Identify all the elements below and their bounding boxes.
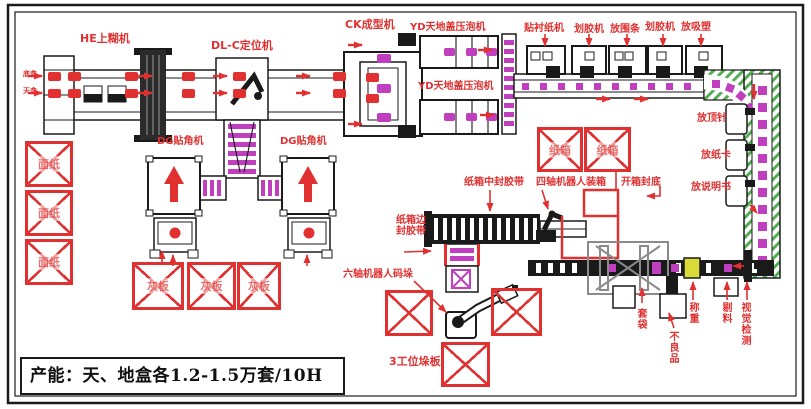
pallet-facepaper-2: 面纸 [25,190,73,236]
pallet-label: 面纸 [37,205,61,221]
dg-corner-machine-left [146,156,202,258]
label-edge-seal-tape: 纸箱边封胶带 [396,215,430,237]
label-six-axis-palletizer: 六轴机器人码垛 [343,269,413,280]
line-art: .s2{stroke:#1a1a1a;stroke-width:2;fill:#… [0,0,811,409]
glue-scoring-machine-2 [648,46,682,78]
label-bagging: 套袋 [635,308,646,330]
label-glue-scoring-1: 划胶机 [574,24,604,35]
pallet-label: 面纸 [37,156,61,172]
pallet-label: 面纸 [37,254,61,270]
pallet-label: 灰板 [200,278,224,294]
label-place-manual: 放说明书 [691,182,731,193]
pallet-station-3 [441,342,490,387]
pallet-label: 灰板 [146,278,170,294]
finishing-conveyor [514,74,704,98]
pallet-greyboard-2: 灰板 [187,262,236,310]
label-ck-forming-machine: CK成型机 [345,19,395,31]
label-weighing: 称重 [687,302,698,324]
label-dlc-positioner: DL-C定位机 [211,40,273,52]
center-vertical-conveyor [200,120,284,200]
ck-forming-machine-drawing [344,33,422,138]
label-top-box-feed: 天盒 [23,88,37,96]
label-yd-press-top: YD天地盖压泡机 [410,22,486,33]
label-he-gluing-machine: HE上糊机 [80,33,130,45]
glue-scoring-machine-1 [572,46,606,78]
pallet-carton-1: 纸箱 [537,127,583,172]
label-four-axis-packing: 四轴机器人装箱 [536,177,606,188]
label-lining-paper-machine: 贴衬纸机 [524,23,564,34]
lining-paper-machine [527,46,565,78]
label-vision-inspection: 视觉检测 [739,302,750,346]
label-reject: 剔料 [720,302,731,324]
capacity-text: 产能：天、地盒各1.2-1.5万套/10H [30,366,323,386]
label-dg-left: DG贴角机 [157,136,204,147]
label-place-pin: 放顶针 [697,113,727,124]
label-pallet-stations: 3工位垛板 [389,356,441,368]
pallet-facepaper-3: 面纸 [25,239,73,285]
dg-corner-machine-right [280,156,336,258]
label-center-seal-tape: 纸箱中封胶带 [464,177,524,188]
inspection-conveyor [528,260,774,276]
rim-strip-station [609,46,646,78]
label-blister-placing: 放吸塑 [681,22,711,33]
pallet-label: 纸箱 [548,142,572,158]
pallet-carton-2: 纸箱 [584,127,631,172]
factory-layout-diagram: .s2{stroke:#1a1a1a;stroke-width:2;fill:#… [0,0,811,409]
pallet-greyboard-1: 灰板 [132,262,184,310]
label-rim-strip: 放围条 [610,24,640,35]
label-bottom-box-feed: 底盒 [23,71,37,79]
pallet-station-2 [491,288,542,336]
pallet-greyboard-3: 灰板 [237,262,281,310]
pallet-label: 纸箱 [596,142,620,158]
bagging-station [613,286,635,308]
label-yd-press-bottom: YD天地盖压泡机 [418,81,494,92]
pallet-station-1 [385,290,433,336]
yd-press-machine-bottom [420,100,498,134]
weighing-station [684,258,700,278]
robot-infeed-lane [444,244,480,292]
label-place-card: 放纸卡 [701,150,731,161]
pallet-facepaper-1: 面纸 [25,141,73,187]
label-open-box-seal: 开箱封底 [621,177,661,188]
pallet-label: 灰板 [247,278,271,294]
label-defective: 不良品 [667,331,678,364]
capacity-note-box: 产能：天、地盒各1.2-1.5万套/10H [20,357,345,395]
label-dg-right: DG贴角机 [280,136,327,147]
defect-bin [660,276,686,318]
yd-press-machine-top [420,36,498,68]
label-glue-scoring-2: 划胶机 [645,22,675,33]
corner-turn-conveyor [704,70,780,278]
